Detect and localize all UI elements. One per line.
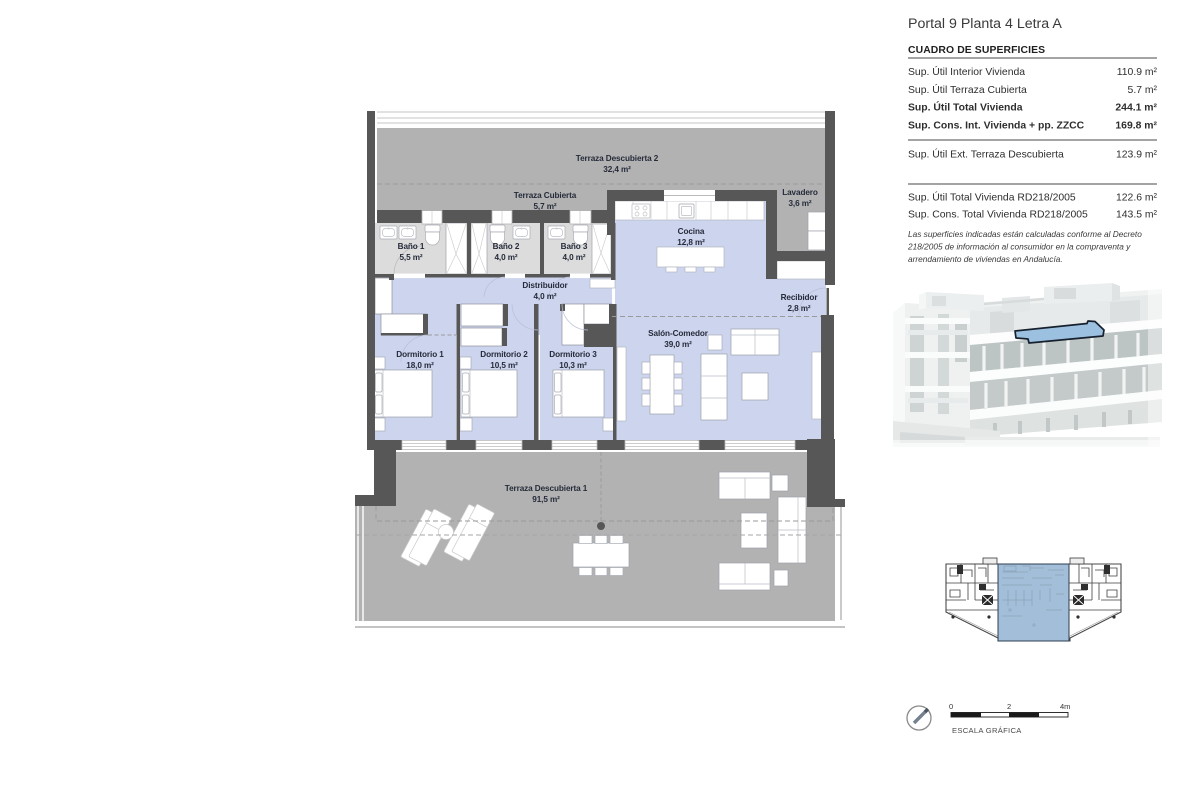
svg-text:Portal 9 Planta 4 Letra A: Portal 9 Planta 4 Letra A [908,16,1062,32]
svg-text:Sup. Útil Ext. Terraza Descubi: Sup. Útil Ext. Terraza Descubierta [908,148,1064,161]
svg-text:Baño 3: Baño 3 [561,242,588,251]
svg-text:244.1 m²: 244.1 m² [1115,103,1157,114]
svg-text:Las superficies indicadas está: Las superficies indicadas están calculad… [908,229,1142,239]
svg-text:5,7 m²: 5,7 m² [533,202,556,211]
svg-text:Dormitorio 1: Dormitorio 1 [396,350,444,359]
svg-text:123.9 m²: 123.9 m² [1116,150,1158,161]
svg-text:4,0 m²: 4,0 m² [562,253,585,262]
svg-text:4,0 m²: 4,0 m² [494,253,517,262]
svg-text:2: 2 [1007,702,1011,711]
svg-text:12,8 m²: 12,8 m² [677,238,705,247]
svg-text:5.7 m²: 5.7 m² [1128,85,1158,96]
svg-text:3,6 m²: 3,6 m² [788,199,811,208]
svg-text:Sup. Útil Terraza Cubierta: Sup. Útil Terraza Cubierta [908,83,1027,96]
svg-text:Dormitorio 3: Dormitorio 3 [549,350,597,359]
svg-text:Dormitorio 2: Dormitorio 2 [480,350,528,359]
svg-text:32,4 m²: 32,4 m² [603,165,631,174]
svg-text:Baño 2: Baño 2 [493,242,520,251]
svg-text:Lavadero: Lavadero [782,188,818,197]
svg-text:Distribuidor: Distribuidor [522,281,568,290]
svg-text:91,5 m²: 91,5 m² [532,495,560,504]
svg-text:0: 0 [949,702,953,711]
svg-text:5,5 m²: 5,5 m² [399,253,422,262]
svg-text:Terraza Descubierta 1: Terraza Descubierta 1 [505,484,588,493]
svg-text:Salón-Comedor: Salón-Comedor [648,329,709,338]
svg-text:18,0 m²: 18,0 m² [406,361,434,370]
svg-text:Sup. Útil Total Vivienda: Sup. Útil Total Vivienda [908,101,1023,114]
svg-text:4m: 4m [1060,702,1070,711]
svg-text:143.5 m²: 143.5 m² [1116,210,1158,221]
svg-text:Sup. Útil Total Vivienda RD218: Sup. Útil Total Vivienda RD218/2005 [908,191,1076,204]
svg-text:218/2005 de información al con: 218/2005 de información al consumidor en… [907,242,1131,252]
svg-text:ESCALA GRÁFICA: ESCALA GRÁFICA [952,726,1022,735]
svg-text:169.8 m²: 169.8 m² [1115,121,1157,132]
svg-text:4,0 m²: 4,0 m² [533,292,556,301]
svg-text:Sup. Cons. Int. Vivienda + pp.: Sup. Cons. Int. Vivienda + pp. ZZCC [908,121,1085,132]
svg-text:122.6 m²: 122.6 m² [1116,193,1158,204]
svg-text:Terraza Cubierta: Terraza Cubierta [514,191,577,200]
svg-text:10,5 m²: 10,5 m² [490,361,518,370]
svg-text:Terraza Descubierta 2: Terraza Descubierta 2 [576,154,659,163]
svg-text:Cocina: Cocina [678,227,705,236]
svg-text:39,0 m²: 39,0 m² [664,340,692,349]
svg-text:Sup. Útil Interior Vivienda: Sup. Útil Interior Vivienda [908,65,1025,78]
svg-text:Recibidor: Recibidor [781,293,819,302]
svg-text:Sup. Cons. Total Vivienda RD21: Sup. Cons. Total Vivienda RD218/2005 [908,210,1088,221]
svg-text:10,3 m²: 10,3 m² [559,361,587,370]
svg-text:Baño 1: Baño 1 [398,242,425,251]
svg-text:110.9 m²: 110.9 m² [1117,67,1158,78]
svg-text:CUADRO DE SUPERFICIES: CUADRO DE SUPERFICIES [908,45,1045,56]
svg-text:arrendamiento de viviendas en: arrendamiento de viviendas en Andalucía. [908,254,1063,264]
svg-text:2,8 m²: 2,8 m² [787,304,810,313]
